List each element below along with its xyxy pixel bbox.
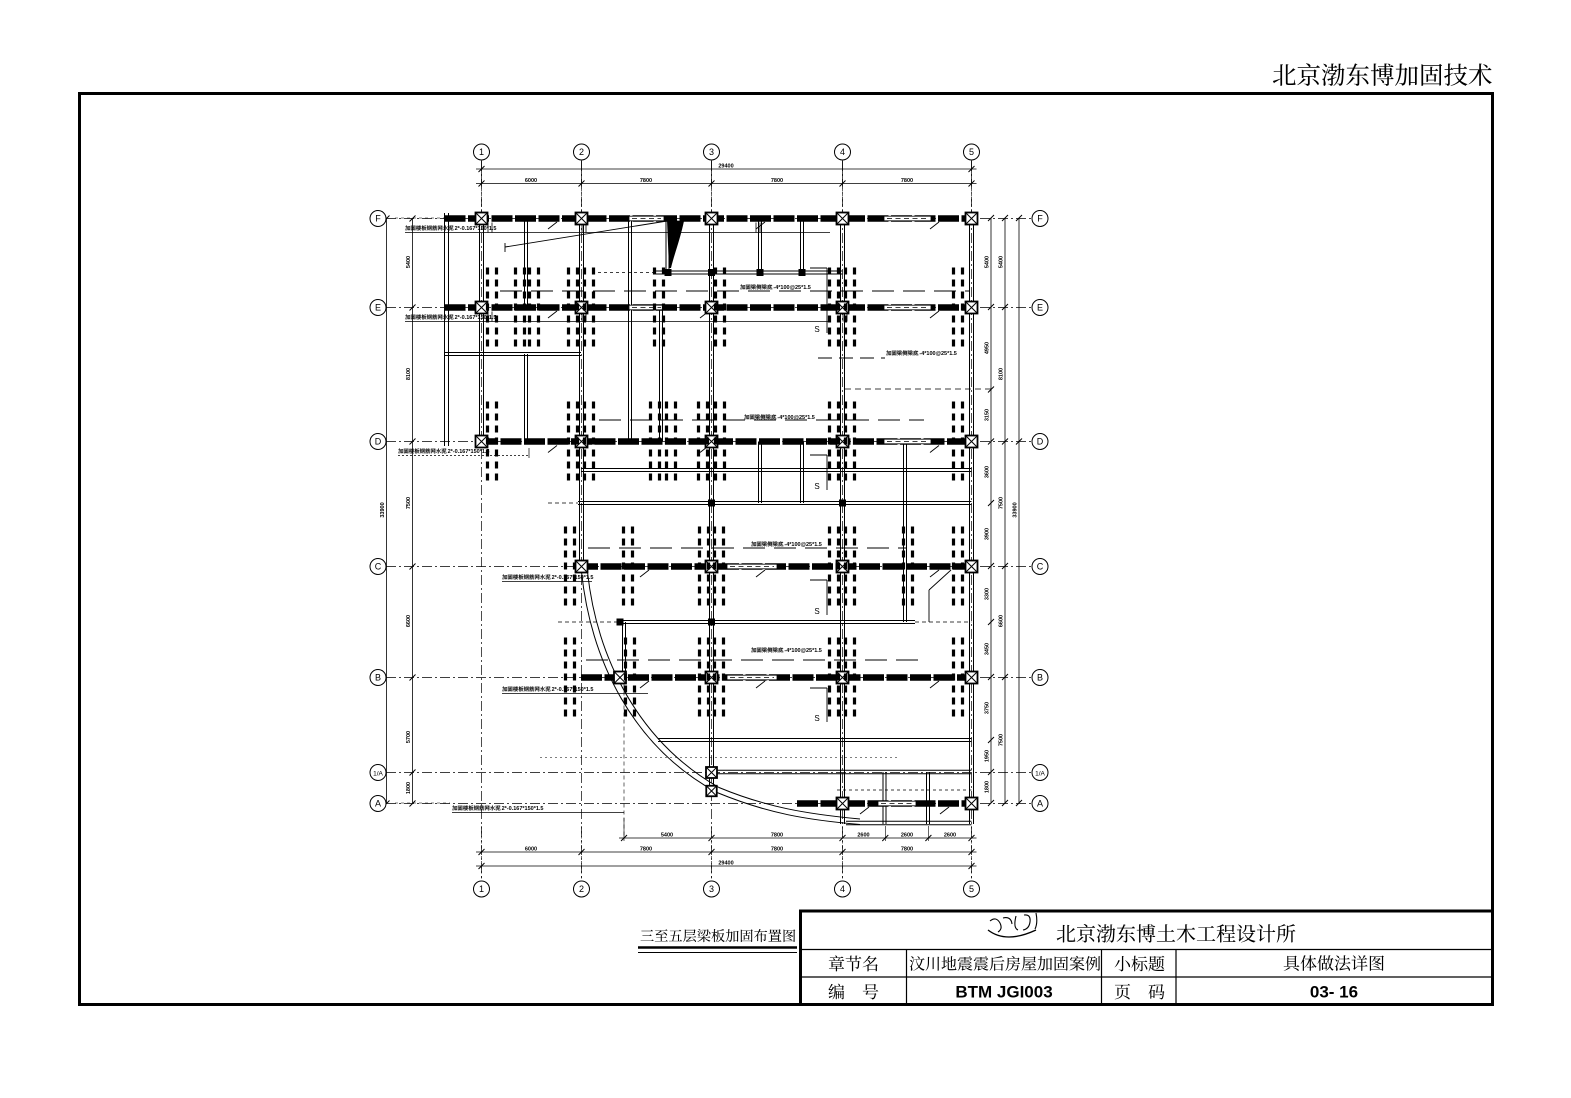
svg-text:7500: 7500 bbox=[999, 497, 1005, 509]
svg-text:2*-0.167*150*1.5: 2*-0.167*150*1.5 bbox=[455, 226, 497, 232]
svg-text:3: 3 bbox=[709, 884, 714, 894]
svg-text:E: E bbox=[1037, 303, 1043, 313]
svg-text:2600: 2600 bbox=[901, 833, 913, 839]
svg-text:C: C bbox=[375, 562, 382, 572]
svg-text:6600: 6600 bbox=[999, 615, 1005, 627]
svg-text:5: 5 bbox=[969, 147, 974, 157]
svg-text:3750: 3750 bbox=[985, 702, 991, 714]
svg-text:S: S bbox=[814, 325, 819, 334]
svg-text:1950: 1950 bbox=[985, 750, 991, 762]
svg-text:3300: 3300 bbox=[985, 588, 991, 600]
svg-text:2600: 2600 bbox=[857, 833, 869, 839]
svg-text:3900: 3900 bbox=[985, 528, 991, 540]
svg-text:4: 4 bbox=[840, 147, 845, 157]
svg-text:6000: 6000 bbox=[525, 847, 537, 853]
svg-text:2600: 2600 bbox=[944, 833, 956, 839]
svg-text:33900: 33900 bbox=[380, 502, 386, 517]
svg-text:7500: 7500 bbox=[999, 734, 1005, 746]
svg-text:5700: 5700 bbox=[406, 731, 412, 743]
svg-text:2*-0.167*150*1.5: 2*-0.167*150*1.5 bbox=[455, 315, 497, 321]
svg-text:-4*100@25*1.5: -4*100@25*1.5 bbox=[784, 542, 821, 548]
svg-text:8100: 8100 bbox=[406, 368, 412, 380]
svg-text:2*-0.167*150*1.5: 2*-0.167*150*1.5 bbox=[448, 449, 490, 455]
svg-text:29400: 29400 bbox=[718, 164, 733, 170]
svg-text:1800: 1800 bbox=[985, 781, 991, 793]
svg-text:5400: 5400 bbox=[999, 256, 1005, 268]
svg-text:-4*100@25*1.5: -4*100@25*1.5 bbox=[784, 648, 821, 654]
svg-text:7800: 7800 bbox=[771, 833, 783, 839]
svg-text:8100: 8100 bbox=[999, 368, 1005, 380]
svg-text:B: B bbox=[1037, 673, 1043, 683]
svg-text:BTM JGI003: BTM JGI003 bbox=[955, 983, 1052, 1002]
svg-text:4: 4 bbox=[840, 884, 845, 894]
svg-text:-4*100@25*1.5: -4*100@25*1.5 bbox=[919, 351, 956, 357]
svg-text:7800: 7800 bbox=[771, 847, 783, 853]
svg-text:3150: 3150 bbox=[985, 409, 991, 421]
svg-text:2*-0.167*150*1.5: 2*-0.167*150*1.5 bbox=[552, 687, 594, 693]
svg-text:-4*100@25*1.5: -4*100@25*1.5 bbox=[777, 415, 814, 421]
svg-text:2*-0.167*150*1.5: 2*-0.167*150*1.5 bbox=[502, 806, 544, 812]
svg-text:7800: 7800 bbox=[771, 178, 783, 184]
svg-text:29400: 29400 bbox=[718, 861, 733, 867]
svg-text:-4*100@25*1.5: -4*100@25*1.5 bbox=[773, 285, 810, 291]
svg-text:7500: 7500 bbox=[406, 497, 412, 509]
svg-text:D: D bbox=[1037, 437, 1044, 447]
svg-text:5400: 5400 bbox=[406, 256, 412, 268]
svg-text:6600: 6600 bbox=[406, 615, 412, 627]
svg-text:5: 5 bbox=[969, 884, 974, 894]
svg-text:5400: 5400 bbox=[985, 256, 991, 268]
svg-text:F: F bbox=[375, 214, 381, 224]
svg-text:S: S bbox=[814, 482, 819, 491]
svg-text:7800: 7800 bbox=[640, 178, 652, 184]
svg-text:1/A: 1/A bbox=[373, 771, 383, 778]
svg-text:7800: 7800 bbox=[640, 847, 652, 853]
svg-text:S: S bbox=[814, 714, 819, 723]
svg-text:1: 1 bbox=[479, 147, 484, 157]
svg-text:3450: 3450 bbox=[985, 643, 991, 655]
svg-text:1: 1 bbox=[479, 884, 484, 894]
svg-text:C: C bbox=[1037, 562, 1044, 572]
svg-text:A: A bbox=[1037, 799, 1043, 809]
svg-text:E: E bbox=[375, 303, 381, 313]
svg-text:7800: 7800 bbox=[901, 178, 913, 184]
svg-text:A: A bbox=[375, 799, 381, 809]
svg-text:S: S bbox=[814, 607, 819, 616]
svg-text:1800: 1800 bbox=[406, 782, 412, 794]
svg-text:33900: 33900 bbox=[1013, 502, 1019, 517]
svg-text:7800: 7800 bbox=[901, 847, 913, 853]
svg-text:D: D bbox=[375, 437, 382, 447]
svg-text:3: 3 bbox=[709, 147, 714, 157]
svg-text:4950: 4950 bbox=[985, 342, 991, 354]
svg-text:03- 16: 03- 16 bbox=[1310, 983, 1358, 1002]
svg-text:1/A: 1/A bbox=[1035, 771, 1045, 778]
svg-text:3600: 3600 bbox=[985, 466, 991, 478]
svg-text:2*-0.167*150*1.5: 2*-0.167*150*1.5 bbox=[552, 575, 594, 581]
svg-text:2: 2 bbox=[579, 884, 584, 894]
svg-text:2: 2 bbox=[579, 147, 584, 157]
svg-text:B: B bbox=[375, 673, 381, 683]
svg-text:6000: 6000 bbox=[525, 178, 537, 184]
svg-text:5400: 5400 bbox=[661, 833, 673, 839]
svg-text:F: F bbox=[1037, 214, 1043, 224]
